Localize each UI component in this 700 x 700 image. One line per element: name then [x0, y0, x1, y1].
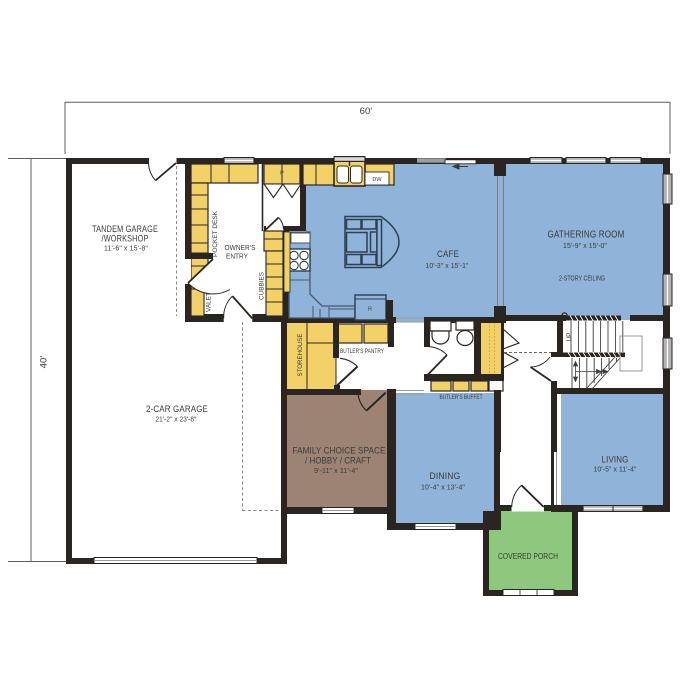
- svg-text:FAMILY CHOICE SPACE: FAMILY CHOICE SPACE: [293, 446, 386, 456]
- svg-text:2-STORY CEILING: 2-STORY CEILING: [559, 276, 605, 283]
- svg-text:P: P: [280, 171, 284, 177]
- svg-text:11'-6" x 15'-8": 11'-6" x 15'-8": [104, 244, 148, 253]
- svg-text:BUTLER'S PANTRY: BUTLER'S PANTRY: [340, 349, 384, 355]
- svg-text:CAFE: CAFE: [437, 249, 459, 260]
- svg-text:COVERED PORCH: COVERED PORCH: [498, 552, 558, 561]
- svg-text:STOREHOUSE: STOREHOUSE: [298, 334, 304, 377]
- svg-text:VALET: VALET: [207, 292, 213, 312]
- svg-text:40': 40': [39, 356, 50, 369]
- svg-text:/ HOBBY / CRAFT: / HOBBY / CRAFT: [305, 456, 371, 466]
- svg-text:10'-3" x 15'-1": 10'-3" x 15'-1": [426, 261, 469, 270]
- svg-text:GATHERING ROOM: GATHERING ROOM: [548, 230, 625, 241]
- svg-text:10'-4" x 13'-4": 10'-4" x 13'-4": [421, 483, 465, 492]
- svg-text:60': 60': [360, 106, 373, 117]
- svg-text:BUTLER'S BUFFET: BUTLER'S BUFFET: [440, 395, 483, 401]
- svg-text:R: R: [368, 307, 372, 313]
- svg-text:21'-2" x 23'-8": 21'-2" x 23'-8": [156, 415, 197, 424]
- svg-text:9'-11" x 11'-4": 9'-11" x 11'-4": [314, 466, 358, 475]
- svg-text:15'-9" x 15'-0": 15'-9" x 15'-0": [563, 241, 607, 250]
- svg-text:UP: UP: [566, 332, 573, 341]
- svg-text:POCKET DESK: POCKET DESK: [213, 211, 219, 257]
- svg-text:DINING: DINING: [430, 471, 461, 482]
- svg-text:10'-5" x 11'-4": 10'-5" x 11'-4": [594, 465, 637, 474]
- svg-text:ENTRY: ENTRY: [226, 252, 248, 261]
- svg-text:2-CAR GARAGE: 2-CAR GARAGE: [146, 404, 208, 415]
- svg-text:DW: DW: [372, 177, 382, 183]
- svg-text:CUBBIES: CUBBIES: [260, 272, 266, 300]
